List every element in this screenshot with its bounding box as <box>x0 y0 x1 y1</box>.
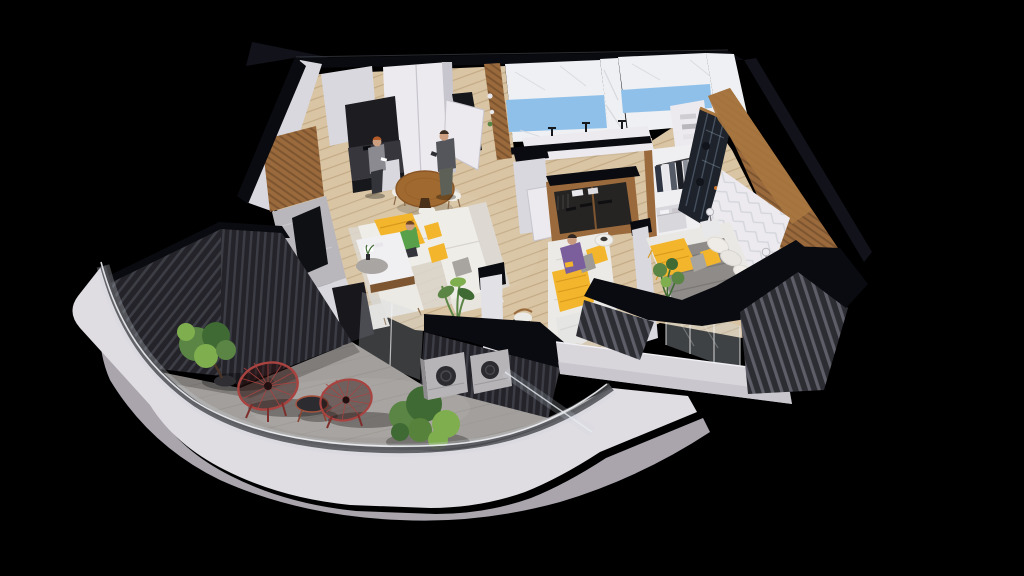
open-wardrobe <box>546 166 640 242</box>
floor-plan-canvas <box>0 0 1024 576</box>
table-pedestal <box>419 198 431 208</box>
bathroom1-blue-tiles <box>506 95 607 132</box>
kitchen <box>345 96 405 199</box>
floor-plan-stage <box>0 0 1024 576</box>
round-grey-rug <box>356 258 388 274</box>
